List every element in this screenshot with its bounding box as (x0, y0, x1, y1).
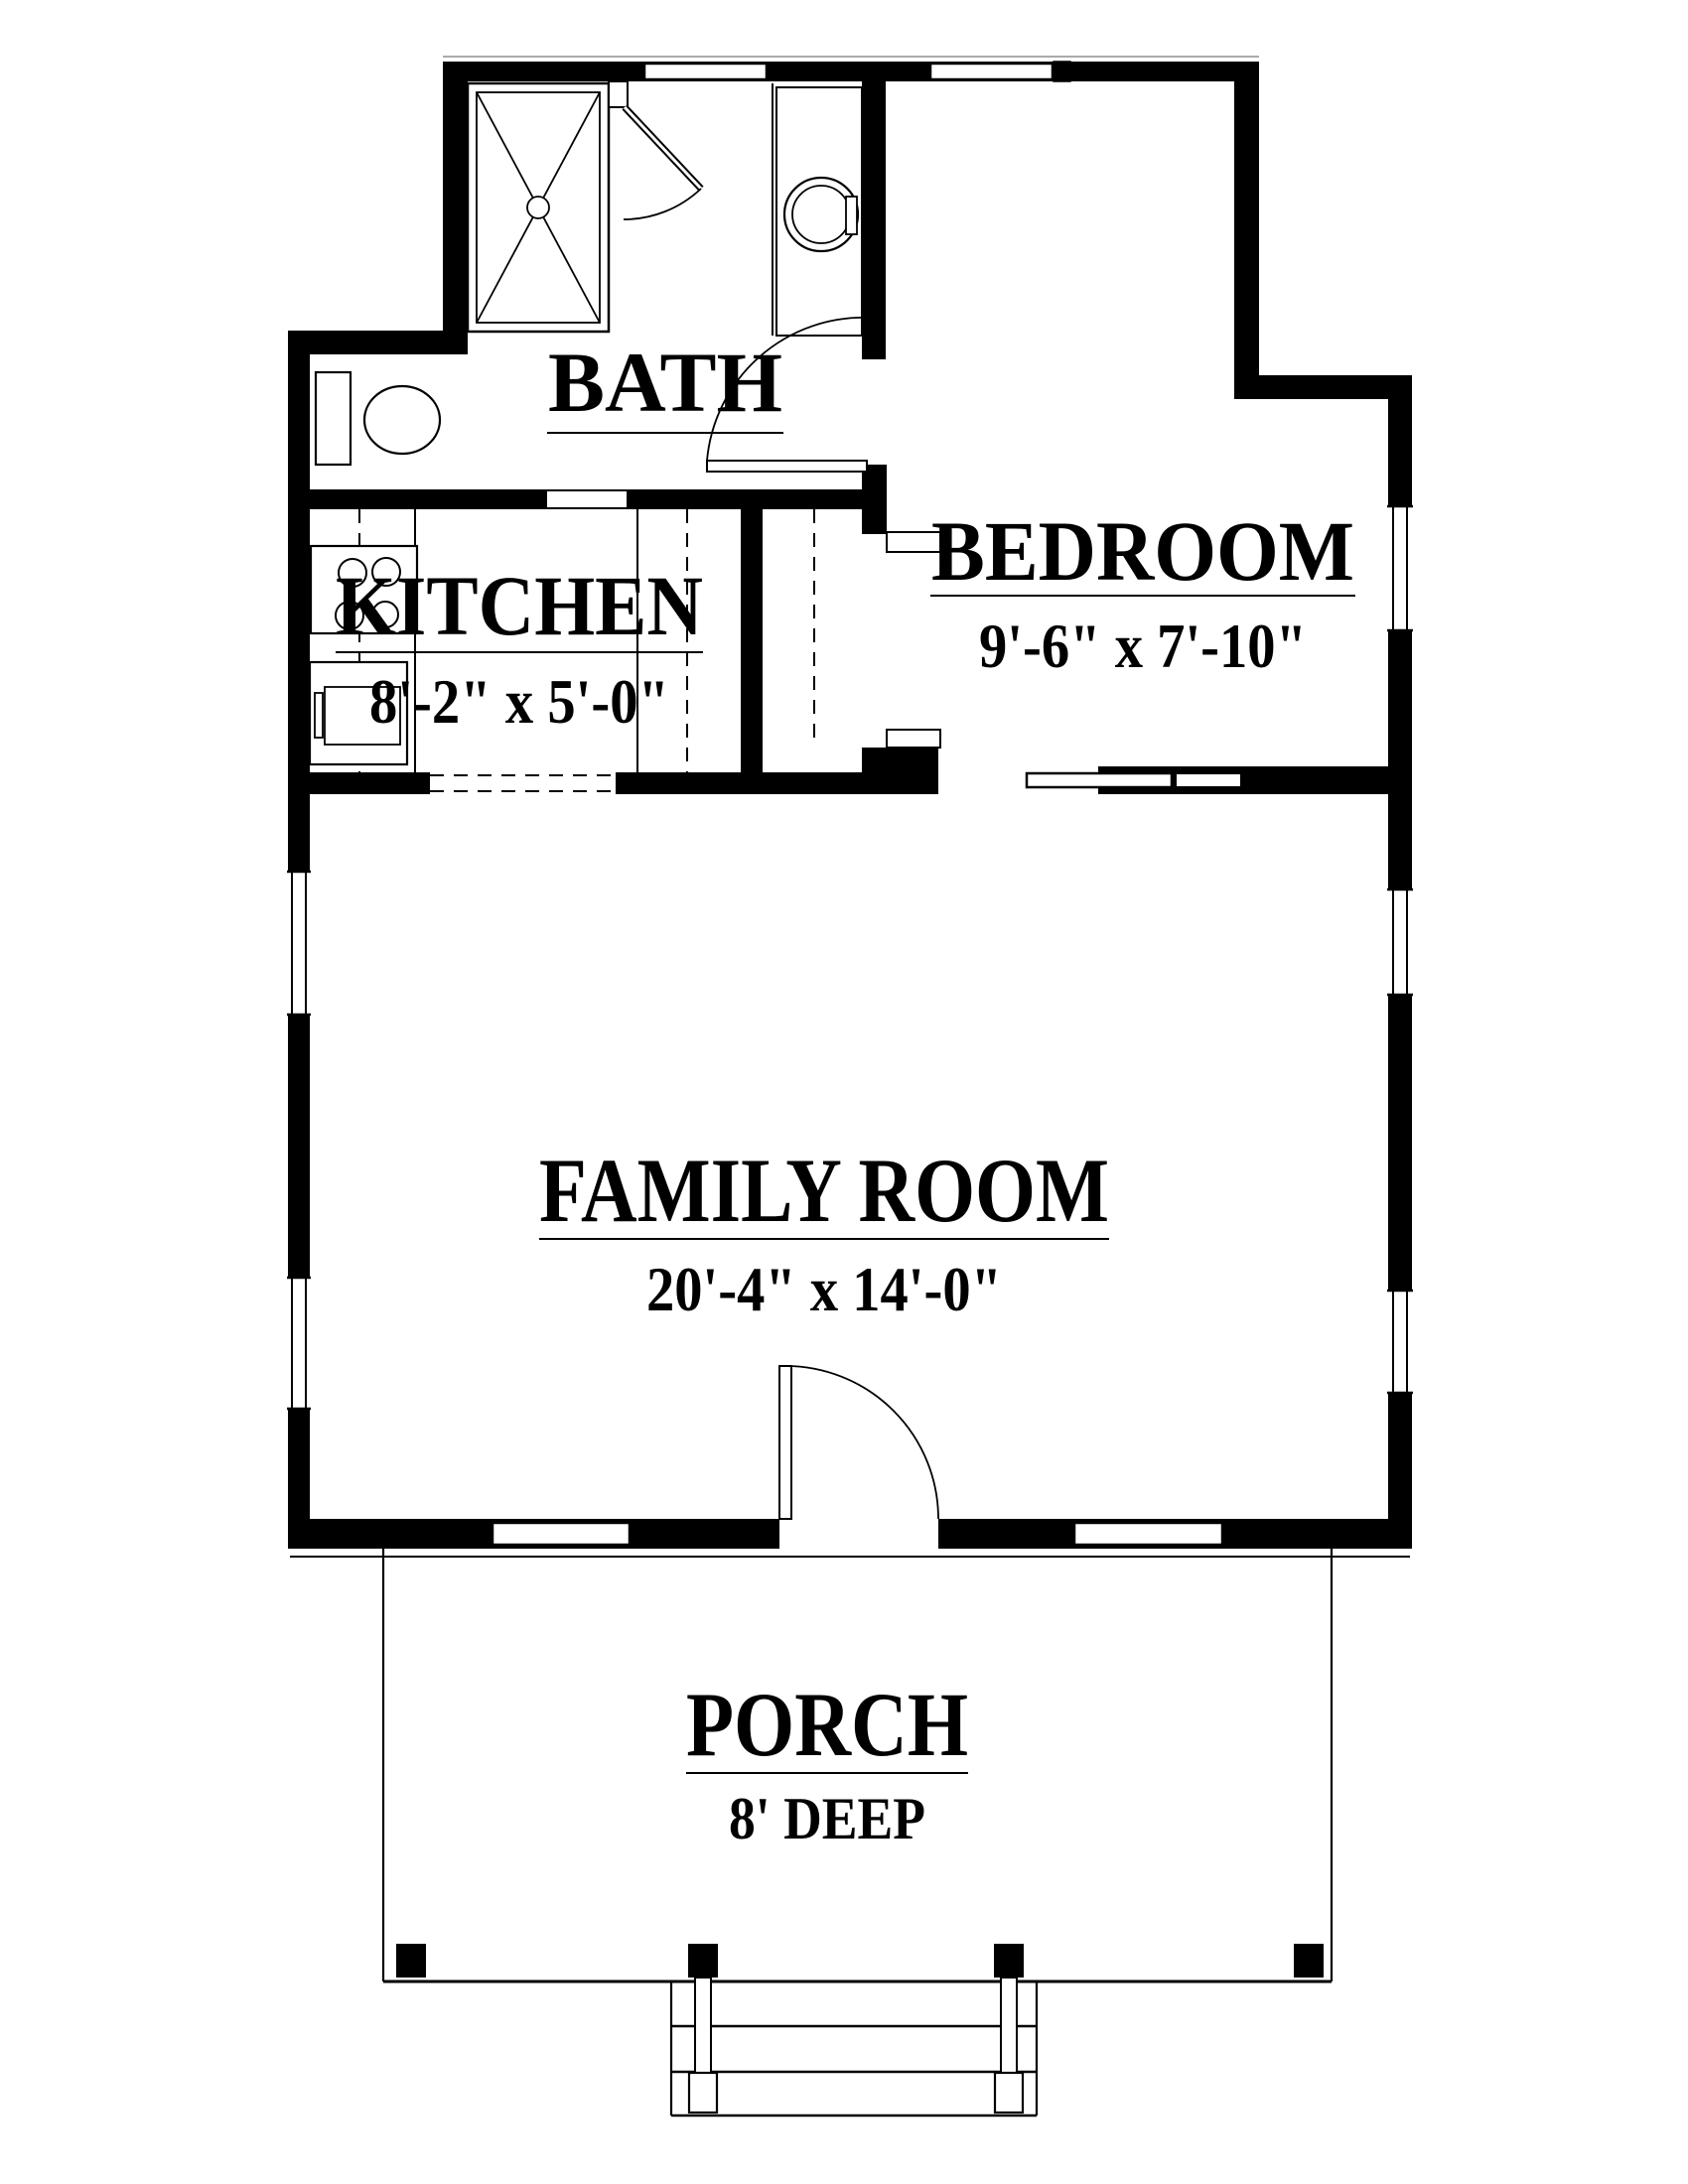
wall-hatch-icon (1054, 62, 1070, 81)
label-kitchen: KITCHEN 8'-2" x 5'-0" (336, 558, 703, 737)
window-right-family-2 (1387, 1291, 1413, 1393)
wall-south-a (288, 772, 430, 794)
wall-bath-left (443, 62, 468, 354)
room-dims-family: 20'-4" x 14'-0" (646, 1254, 1002, 1324)
front-door-opening (779, 1517, 938, 1551)
wall-closet-stub-top (862, 465, 887, 534)
wall-top (443, 62, 1259, 81)
pocket-door-slab (1027, 773, 1172, 787)
window-top-b (930, 64, 1053, 79)
room-name-family: FAMILY ROOM (539, 1140, 1109, 1241)
stair-rail-right (1001, 1978, 1017, 2073)
room-dims-porch: 8' DEEP (729, 1786, 925, 1851)
label-bath: BATH (547, 335, 783, 433)
wall-pantry-east (741, 509, 763, 772)
shower-icon (468, 83, 609, 332)
pocket-door-icon (1027, 773, 1241, 787)
room-dims-kitchen: 8'-2" x 5'-0" (369, 666, 669, 737)
wall-south-b (616, 772, 763, 794)
floor-plan: BATH KITCHEN 8'-2" x 5'-0" BEDROOM 9'-6"… (0, 0, 1688, 2184)
label-bedroom: BEDROOM 9'-6" x 7'-10" (930, 503, 1355, 681)
window-top-a (644, 64, 767, 79)
room-name-bath: BATH (548, 335, 782, 430)
washer-icon (773, 83, 862, 336)
window-bottom-2 (1074, 1523, 1222, 1545)
wall-south-c (763, 772, 862, 794)
wall-upper-right (1234, 62, 1259, 399)
room-name-kitchen: KITCHEN (336, 558, 703, 653)
window-right-family-1 (1387, 889, 1413, 995)
wall-step-top-right (1234, 375, 1412, 399)
pocket-door-cavity (1176, 773, 1241, 787)
room-name-bedroom: BEDROOM (931, 503, 1354, 599)
window-right-bedroom (1387, 506, 1413, 630)
room-name-porch: PORCH (686, 1674, 968, 1775)
window-bottom-1 (492, 1523, 630, 1545)
window-left-2 (287, 1278, 311, 1409)
stair-newel-left (689, 2073, 717, 2113)
window-left-1 (287, 872, 311, 1015)
stair-rail-left (695, 1978, 711, 2073)
room-dims-bedroom: 9'-6" x 7'-10" (979, 611, 1307, 681)
wall-closet-corner-block (862, 748, 938, 794)
wall-step-top-left (288, 331, 468, 354)
stair-newel-right (995, 2073, 1023, 2113)
wall-niche (546, 490, 628, 508)
wall-bedroom-west-upper (862, 62, 886, 359)
